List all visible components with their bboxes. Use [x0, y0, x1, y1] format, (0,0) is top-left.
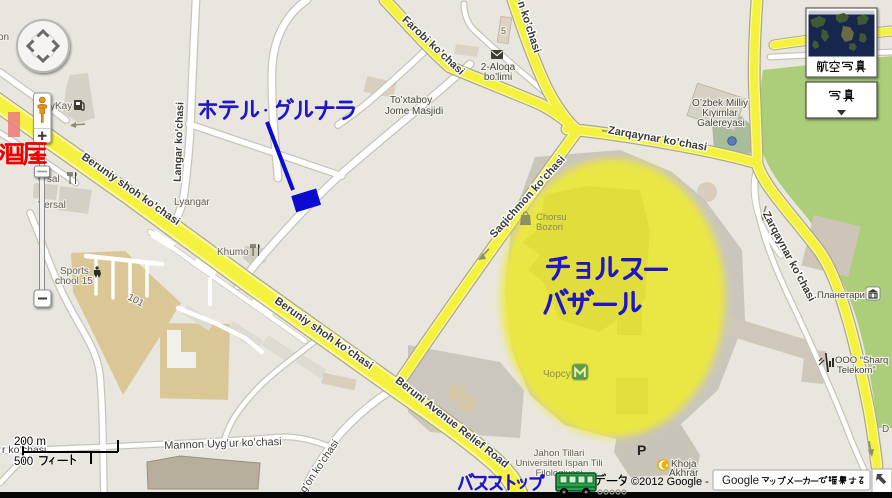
- svg-text:500: 500: [14, 456, 33, 468]
- svg-text:D: D: [882, 424, 889, 435]
- svg-text:Google: Google: [722, 475, 759, 487]
- svg-text:Telekom”: Telekom”: [837, 365, 876, 376]
- svg-text:P: P: [637, 442, 646, 458]
- svg-text:Чорсу: Чорсу: [543, 369, 571, 380]
- svg-text:Jome Masjidi: Jome Masjidi: [385, 106, 443, 117]
- svg-text:5: 5: [501, 26, 506, 36]
- svg-text:To’xtaboy: To’xtaboy: [390, 95, 432, 106]
- svg-text:Khumo: Khumo: [217, 247, 249, 258]
- svg-text:bo’limi: bo’limi: [484, 72, 512, 83]
- svg-text:chool 15: chool 15: [55, 276, 93, 287]
- svg-text:200 m: 200 m: [14, 436, 46, 448]
- svg-text:yKay: yKay: [50, 101, 72, 112]
- svg-text:Galereyasi: Galereyasi: [697, 118, 745, 129]
- svg-text:Lyangar: Lyangar: [174, 197, 210, 208]
- svg-text:Bozori: Bozori: [536, 222, 563, 233]
- svg-text:on: on: [0, 32, 9, 43]
- svg-text:Планетарий: Планетарий: [817, 290, 870, 301]
- svg-text:©2012 Google -: ©2012 Google -: [631, 476, 709, 488]
